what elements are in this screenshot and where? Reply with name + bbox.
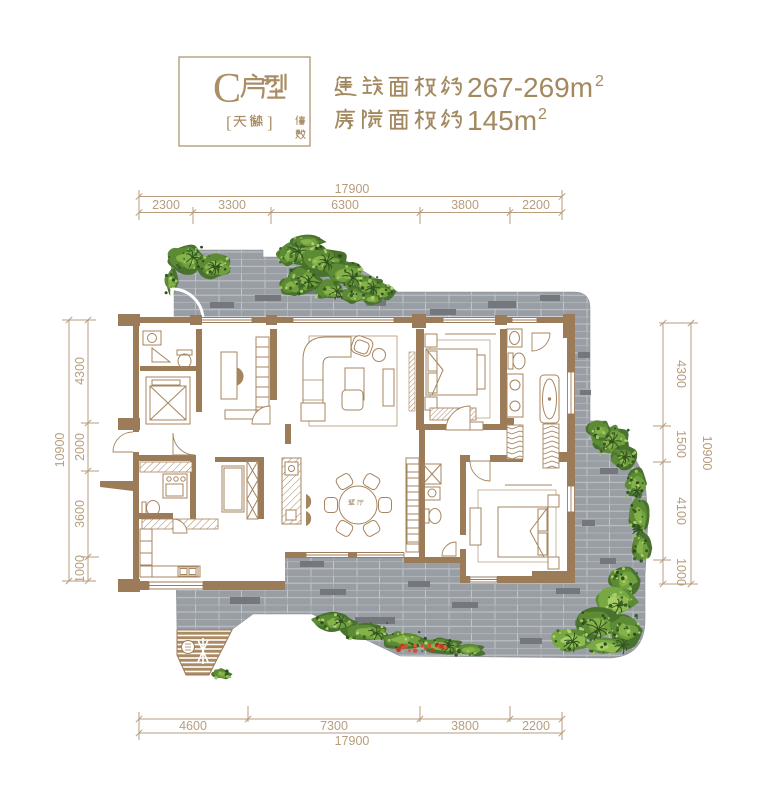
- svg-text:2: 2: [538, 106, 547, 123]
- svg-text:10900: 10900: [53, 433, 67, 468]
- svg-text:4300: 4300: [73, 357, 87, 385]
- svg-text:]: ]: [267, 113, 273, 132]
- svg-text:267-269m: 267-269m: [467, 72, 593, 103]
- svg-text:4100: 4100: [674, 497, 688, 525]
- svg-text:2: 2: [595, 73, 604, 90]
- svg-text:4300: 4300: [674, 360, 688, 388]
- svg-text:3600: 3600: [73, 500, 87, 528]
- svg-text:3800: 3800: [451, 719, 479, 733]
- svg-text:2200: 2200: [522, 719, 550, 733]
- svg-text:10900: 10900: [700, 436, 714, 471]
- svg-text:3800: 3800: [451, 198, 479, 212]
- svg-text:1500: 1500: [674, 430, 688, 458]
- svg-text:6300: 6300: [331, 198, 359, 212]
- svg-text:145m: 145m: [467, 105, 537, 136]
- svg-text:4600: 4600: [179, 719, 207, 733]
- svg-text:2300: 2300: [152, 198, 180, 212]
- svg-text:7300: 7300: [320, 719, 348, 733]
- svg-text:2000: 2000: [73, 433, 87, 461]
- svg-text:[: [: [226, 113, 232, 132]
- svg-text:17900: 17900: [335, 734, 370, 748]
- svg-text:17900: 17900: [335, 182, 370, 196]
- svg-text:C: C: [213, 66, 241, 112]
- svg-text:1000: 1000: [674, 558, 688, 586]
- svg-text:3300: 3300: [218, 198, 246, 212]
- svg-text:2200: 2200: [522, 198, 550, 212]
- svg-text:1000: 1000: [73, 555, 87, 583]
